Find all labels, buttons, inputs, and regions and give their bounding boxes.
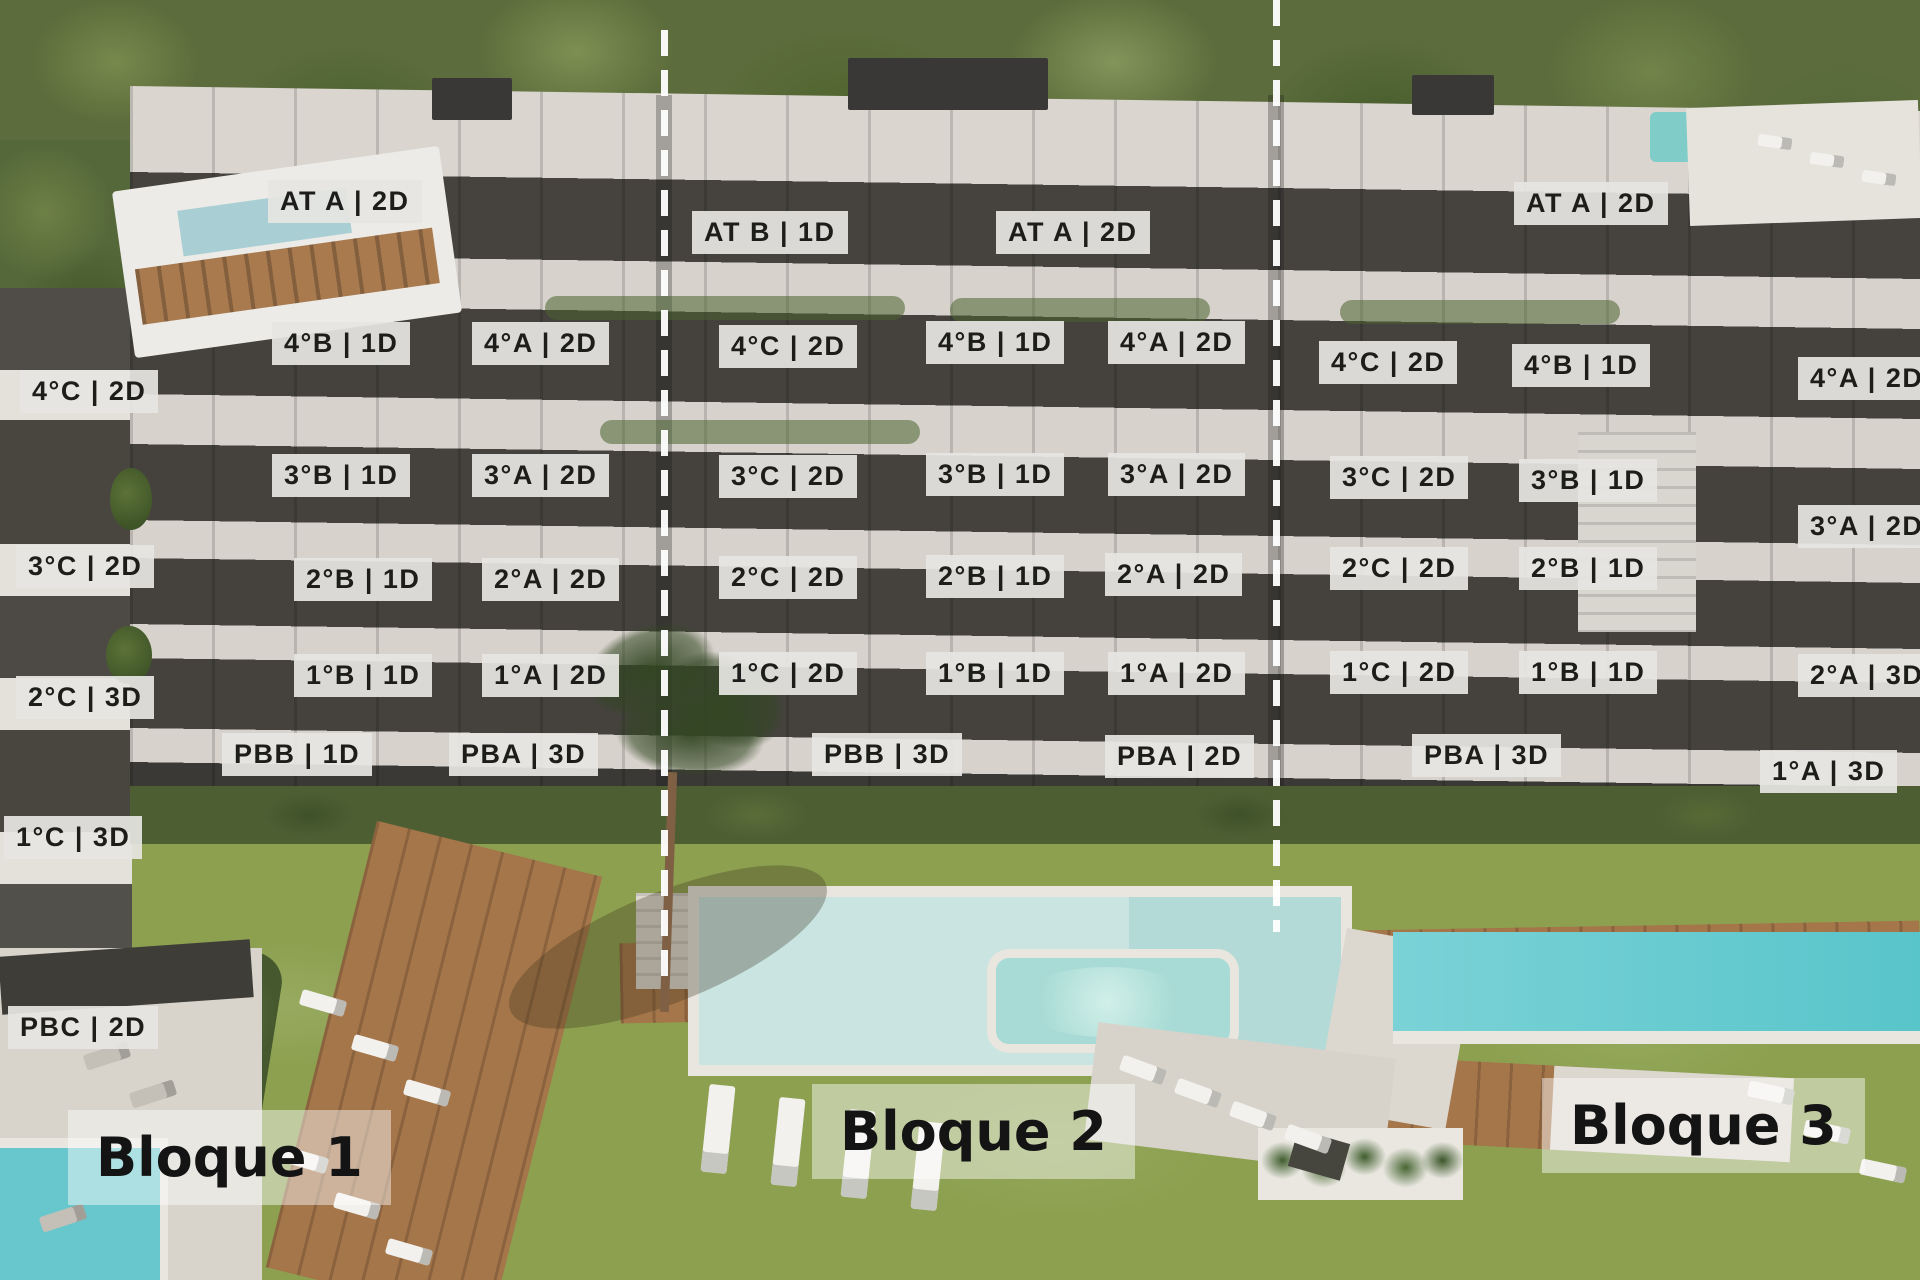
unit-label-3-a-2d: 3°A | 2D [472, 454, 609, 497]
unit-label-2-b-1d: 2°B | 1D [926, 555, 1064, 598]
unit-label-pbb-3d: PBB | 3D [812, 733, 962, 776]
unit-label-at-b-1d: AT B | 1D [692, 211, 848, 254]
unit-label-3-b-1d: 3°B | 1D [272, 454, 410, 497]
unit-labels-layer: Bloque 1 Bloque 2 Bloque 3 AT A | 2D4°C … [0, 0, 1920, 1280]
unit-label-4-c-2d: 4°C | 2D [1319, 341, 1457, 384]
unit-label-2-a-2d: 2°A | 2D [1105, 553, 1242, 596]
unit-label-3-a-2d: 3°A | 2D [1798, 505, 1920, 548]
unit-label-4-b-1d: 4°B | 1D [926, 321, 1064, 364]
unit-label-2-c-2d: 2°C | 2D [1330, 547, 1468, 590]
unit-label-pbc-2d: PBC | 2D [8, 1006, 158, 1049]
unit-label-4-c-2d: 4°C | 2D [20, 370, 158, 413]
unit-label-4-a-2d: 4°A | 2D [1108, 321, 1245, 364]
unit-label-2-a-3d: 2°A | 3D [1798, 654, 1920, 697]
bloque-2-title: Bloque 2 [812, 1084, 1135, 1179]
unit-label-3-a-2d: 3°A | 2D [1108, 453, 1245, 496]
unit-label-2-b-1d: 2°B | 1D [294, 558, 432, 601]
unit-label-4-c-2d: 4°C | 2D [719, 325, 857, 368]
unit-label-3-b-1d: 3°B | 1D [1519, 459, 1657, 502]
unit-label-1-c-2d: 1°C | 2D [1330, 651, 1468, 694]
development-aerial-view: Bloque 1 Bloque 2 Bloque 3 AT A | 2D4°C … [0, 0, 1920, 1280]
bloque-1-title: Bloque 1 [68, 1110, 391, 1205]
unit-label-4-a-2d: 4°A | 2D [1798, 357, 1920, 400]
unit-label-at-a-2d: AT A | 2D [996, 211, 1150, 254]
unit-label-1-c-2d: 1°C | 2D [719, 652, 857, 695]
unit-label-3-c-2d: 3°C | 2D [1330, 456, 1468, 499]
unit-label-pba-2d: PBA | 2D [1105, 735, 1254, 778]
unit-label-4-b-1d: 4°B | 1D [1512, 344, 1650, 387]
unit-label-pba-3d: PBA | 3D [1412, 734, 1561, 777]
unit-label-3-c-2d: 3°C | 2D [16, 545, 154, 588]
unit-label-2-b-1d: 2°B | 1D [1519, 547, 1657, 590]
unit-label-1-a-2d: 1°A | 2D [482, 654, 619, 697]
bloque-3-title: Bloque 3 [1542, 1078, 1865, 1173]
unit-label-pbb-1d: PBB | 1D [222, 733, 372, 776]
unit-label-3-c-2d: 3°C | 2D [719, 455, 857, 498]
unit-label-4-b-1d: 4°B | 1D [272, 322, 410, 365]
unit-label-at-a-2d: AT A | 2D [268, 180, 422, 223]
unit-label-4-a-2d: 4°A | 2D [472, 322, 609, 365]
unit-label-pba-3d: PBA | 3D [449, 733, 598, 776]
unit-label-2-c-2d: 2°C | 2D [719, 556, 857, 599]
unit-label-at-a-2d: AT A | 2D [1514, 182, 1668, 225]
unit-label-1-c-3d: 1°C | 3D [4, 816, 142, 859]
unit-label-3-b-1d: 3°B | 1D [926, 453, 1064, 496]
unit-label-1-b-1d: 1°B | 1D [294, 654, 432, 697]
unit-label-1-b-1d: 1°B | 1D [926, 652, 1064, 695]
unit-label-2-a-2d: 2°A | 2D [482, 558, 619, 601]
unit-label-1-a-3d: 1°A | 3D [1760, 750, 1897, 793]
unit-label-1-a-2d: 1°A | 2D [1108, 652, 1245, 695]
unit-label-1-b-1d: 1°B | 1D [1519, 651, 1657, 694]
unit-label-2-c-3d: 2°C | 3D [16, 676, 154, 719]
